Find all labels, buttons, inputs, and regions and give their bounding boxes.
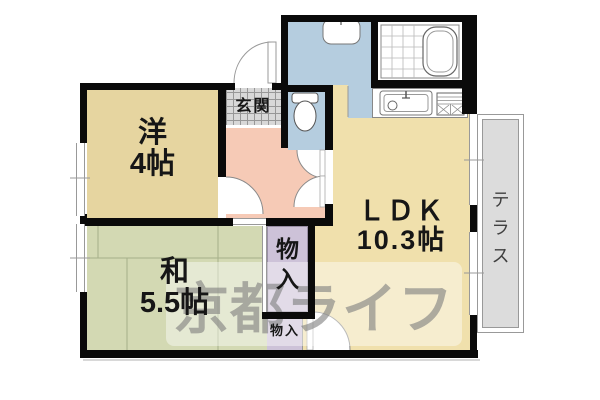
wall	[281, 15, 477, 22]
doorway-western	[218, 177, 226, 218]
washbasin-icon	[323, 19, 360, 44]
wall	[371, 80, 462, 88]
wall	[266, 218, 333, 226]
wall	[262, 312, 315, 319]
closet-small-label: 物入	[267, 324, 303, 338]
terrace-label: テ ラ ス	[477, 186, 524, 270]
room-japanese-name: 和	[87, 257, 262, 288]
doorway-ldk	[325, 150, 333, 204]
floor-plan: 京都ライフ 洋 4帖 和 5.5帖 ＬＤＫ 10.3帖 玄関 物 入 物入	[0, 0, 600, 400]
wall	[281, 15, 288, 148]
closet-large-char: 入	[276, 264, 299, 294]
room-western-size: 4帖	[87, 149, 218, 180]
wall	[308, 226, 315, 312]
closet-large-label: 物 入	[267, 234, 308, 294]
bathtub-icon	[423, 27, 457, 76]
entrance-door-arc	[234, 42, 272, 83]
kitchen-sink-icon	[380, 91, 432, 115]
stove-icon	[437, 93, 464, 115]
room-western-label: 洋 4帖	[87, 118, 218, 181]
door-leaf-ldk	[320, 176, 325, 207]
door-arc-western	[226, 177, 263, 214]
window	[76, 224, 85, 292]
wall	[80, 292, 87, 358]
wall	[371, 22, 378, 80]
entrance-label: 玄関	[226, 98, 281, 115]
wall	[470, 315, 477, 358]
wall	[470, 85, 477, 114]
window	[76, 143, 85, 216]
bathroom	[381, 25, 459, 78]
sliding-door	[233, 218, 266, 225]
closet-large-char: 物	[276, 234, 299, 264]
wall	[325, 92, 333, 150]
wall	[80, 83, 235, 90]
entrance-door-leaf	[268, 42, 276, 83]
wall	[325, 204, 333, 226]
room-japanese-label: 和 5.5帖	[87, 257, 262, 320]
toilet-icon	[292, 93, 318, 131]
terrace-char: テ	[492, 186, 510, 214]
wall	[80, 83, 87, 143]
door-leaf-toilet	[320, 150, 325, 178]
room-japanese-size: 5.5帖	[87, 288, 262, 319]
room-ldk-size: 10.3帖	[333, 226, 470, 255]
room-ldk-name: ＬＤＫ	[333, 197, 470, 226]
wall	[80, 350, 478, 358]
wall	[80, 218, 233, 226]
terrace-char: ラ	[492, 214, 510, 242]
terrace-char: ス	[492, 242, 510, 270]
wall	[281, 85, 333, 92]
room-ldk-label: ＬＤＫ 10.3帖	[333, 197, 470, 255]
wall	[218, 90, 226, 177]
wall	[470, 205, 477, 232]
room-western-name: 洋	[87, 118, 218, 149]
